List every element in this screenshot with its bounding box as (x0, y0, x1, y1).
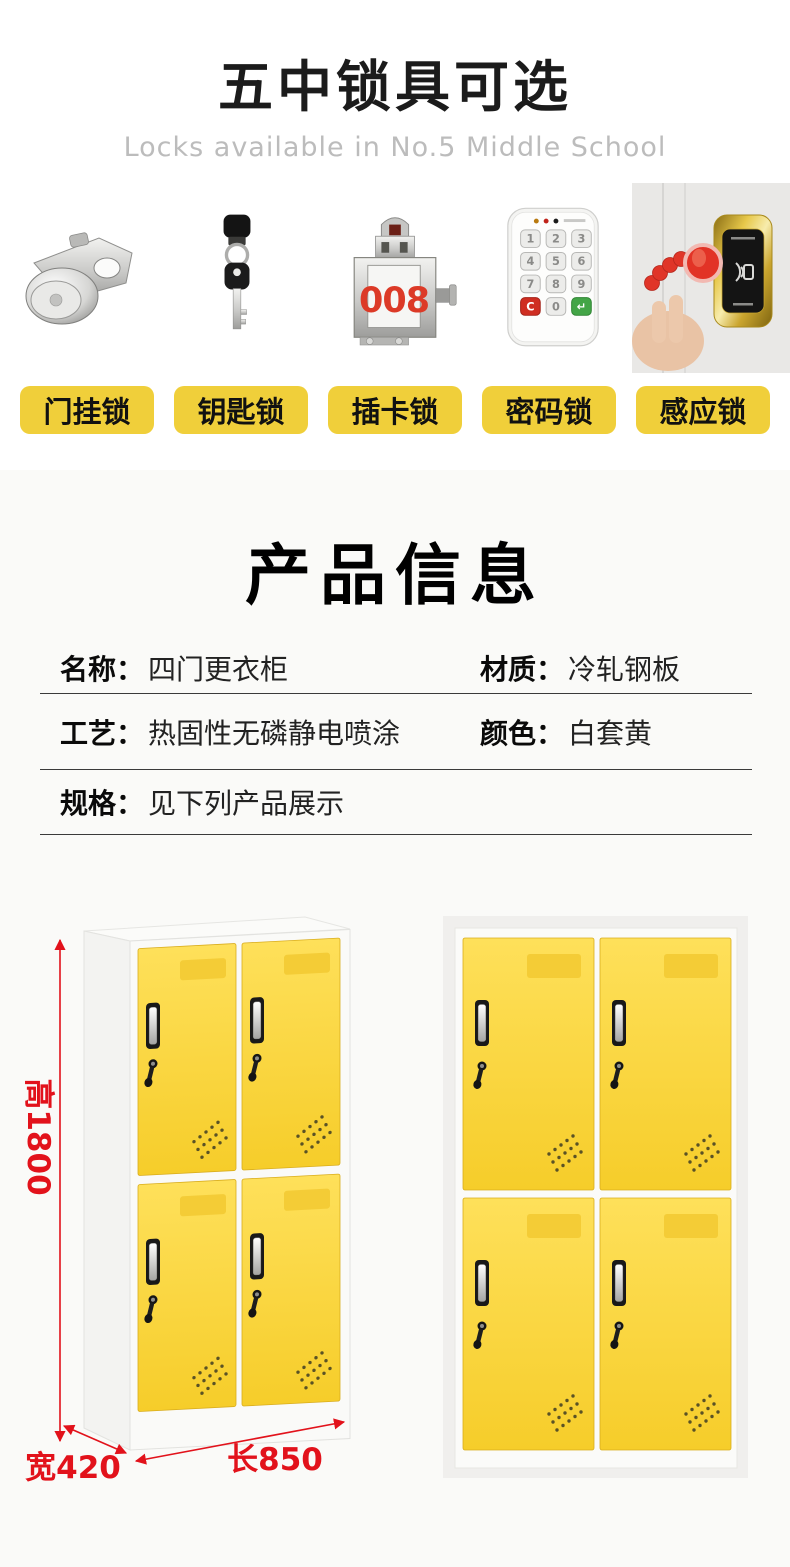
svg-text:5: 5 (552, 255, 560, 268)
lock-label-cam: 门挂锁 (20, 386, 154, 434)
info-value: 四门更衣柜 (148, 648, 288, 688)
svg-text:2: 2 (552, 233, 560, 246)
card-lock-icon: 008 (327, 205, 463, 351)
section-title-product-info: 产品信息 (0, 522, 790, 618)
svg-text:4: 4 (526, 255, 534, 268)
product-detail-page: 五中锁具可选 Locks available in No.5 Middle Sc… (0, 0, 790, 1567)
keypad-lock-icon: 1 2 3 4 5 6 7 8 9 C 0 ↵ (499, 204, 607, 352)
svg-text:9: 9 (578, 278, 586, 291)
locker-right-illustration (400, 900, 790, 1500)
info-row-2: 工艺： 热固性无磷静电喷涂 颜色： 白套黄 (40, 694, 752, 770)
induction-lock-photo (632, 183, 790, 373)
info-cell-process: 工艺： 热固性无磷静电喷涂 (40, 712, 480, 752)
card-lock-number: 008 (359, 281, 429, 321)
svg-text:0: 0 (552, 300, 560, 313)
svg-text:7: 7 (526, 278, 534, 291)
cam-lock-icon (4, 208, 154, 348)
page-title: 五中锁具可选 (0, 42, 790, 122)
svg-text:1: 1 (526, 233, 534, 246)
info-cell-spec: 规格： 见下列产品展示 (40, 782, 480, 822)
lock-label-key: 钥匙锁 (174, 386, 308, 434)
info-label: 名称： (60, 648, 144, 688)
info-cell-material: 材质： 冷轧钢板 (480, 648, 752, 688)
keypad-lock-photo: 1 2 3 4 5 6 7 8 9 C 0 ↵ (474, 183, 632, 373)
info-cell-color: 颜色： 白套黄 (480, 712, 752, 752)
card-lock-photo: 008 (316, 183, 474, 373)
height-dimension-label: 高1800 (20, 1078, 56, 1195)
lock-label-card: 插卡锁 (328, 386, 462, 434)
product-info-table: 名称： 四门更衣柜 材质： 冷轧钢板 工艺： 热固性无磷静电喷涂 颜色： 白套黄 (40, 642, 752, 835)
info-cell-name: 名称： 四门更衣柜 (40, 648, 480, 688)
induction-lock-icon (632, 183, 790, 373)
lock-label-keypad: 密码锁 (482, 386, 616, 434)
svg-text:6: 6 (578, 255, 586, 268)
lock-images-row: 008 (0, 183, 790, 373)
svg-text:C: C (526, 300, 534, 313)
product-info-section: 产品信息 名称： 四门更衣柜 材质： 冷轧钢板 工艺： 热固性无磷静电喷涂 颜色 (0, 470, 790, 1567)
svg-text:↵: ↵ (577, 300, 586, 313)
info-value: 白套黄 (568, 712, 652, 752)
page-subtitle: Locks available in No.5 Middle School (0, 132, 790, 163)
info-label: 颜色： (480, 712, 564, 752)
width-dimension-label: 宽420 (25, 1450, 121, 1486)
info-row-3: 规格： 见下列产品展示 (40, 770, 752, 835)
cam-lock-photo (0, 183, 158, 373)
svg-text:3: 3 (578, 233, 586, 246)
info-value: 冷轧钢板 (568, 648, 680, 688)
info-label: 材质： (480, 648, 564, 688)
info-value: 见下列产品展示 (148, 782, 344, 822)
key-lock-photo (158, 183, 316, 373)
lock-label-induction: 感应锁 (636, 386, 770, 434)
info-row-1: 名称： 四门更衣柜 材质： 冷轧钢板 (40, 642, 752, 694)
key-lock-icon (189, 201, 285, 355)
svg-text:8: 8 (552, 278, 560, 291)
locker-front-face (130, 929, 350, 1450)
length-dimension-label: 长850 (227, 1442, 323, 1478)
info-label: 工艺： (60, 712, 144, 752)
info-label: 规格： (60, 782, 144, 822)
locker-left-illustration: 高1800 宽420 长850 (0, 900, 400, 1500)
lock-labels-row: 门挂锁 钥匙锁 插卡锁 密码锁 感应锁 (0, 386, 790, 434)
info-value: 热固性无磷静电喷涂 (148, 712, 400, 752)
locker-side-panel (84, 931, 130, 1450)
